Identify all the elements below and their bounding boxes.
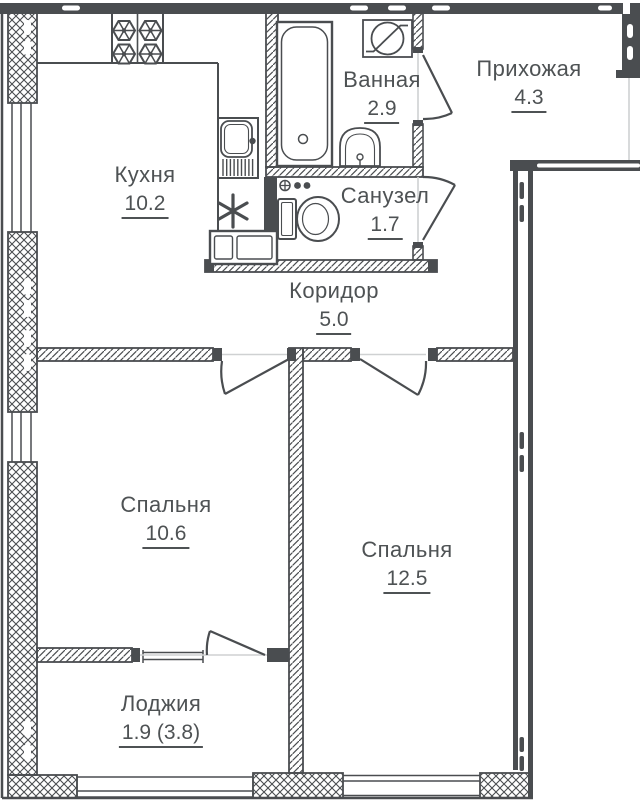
- entrance-wall: [622, 14, 640, 72]
- bedroom-2-door: [360, 359, 426, 395]
- windows: [12, 103, 480, 798]
- toilet-icon: [278, 197, 339, 241]
- bedroom-1-door: [221, 359, 289, 394]
- floor-plan-drawing: [0, 0, 640, 803]
- electrical-panel-icon: [363, 20, 412, 57]
- water-tap-icon: [280, 181, 310, 191]
- bathroom-door: [423, 55, 452, 119]
- wc-door: [423, 177, 455, 240]
- bathroom-fixtures: [277, 20, 412, 166]
- floor-plan: Кухня 10.2 Ванная 2.9 Прихожая 4.3 Сануз…: [0, 0, 640, 803]
- kitchen-window: [12, 103, 31, 232]
- fridge-icon: [219, 195, 247, 227]
- bedroom-1-window: [12, 412, 31, 462]
- wc-fixtures: [278, 181, 339, 242]
- top-wall: [0, 3, 640, 14]
- interior-walls: [37, 13, 513, 773]
- washing-machine-icon: [210, 231, 277, 264]
- washbasin-icon: [340, 128, 380, 166]
- bedroom-2-window: [343, 776, 480, 796]
- kitchen-sink-icon: [218, 118, 258, 178]
- bathtub-icon: [277, 22, 332, 166]
- stove-icon: [112, 13, 163, 64]
- kitchen-counter: [37, 63, 218, 231]
- kitchen-fixtures: [37, 13, 277, 264]
- loggia-glazing: [77, 775, 253, 798]
- right-boundary-wall: [513, 171, 533, 798]
- balcony-window: [143, 650, 203, 663]
- balcony-door: [207, 631, 265, 655]
